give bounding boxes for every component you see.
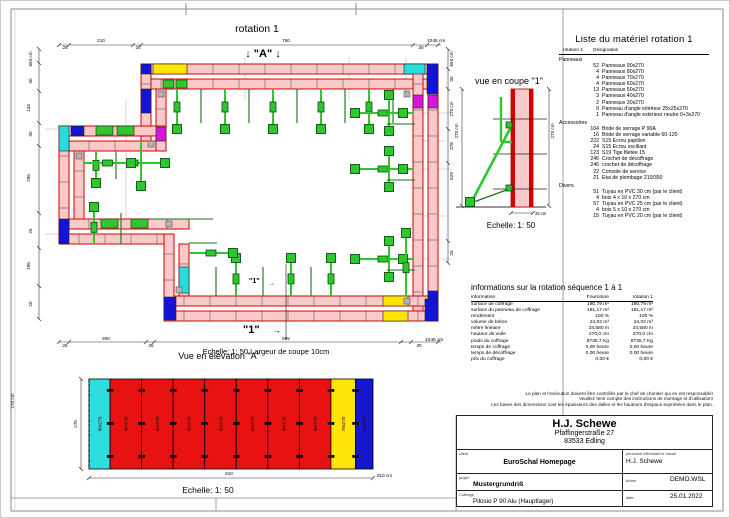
brace-sleeve (174, 102, 180, 112)
formwork-cell: Coffrage Pilosio P 90 Alu (Hauptlager) (457, 491, 623, 507)
brace-pad (385, 127, 394, 136)
dim-total: 694 cm (28, 51, 33, 66)
panel-segment (153, 64, 187, 74)
material-list-header-col2: Désignation (593, 48, 618, 53)
label: 25 (62, 343, 68, 348)
section-title: vue en coupe "1" (475, 76, 543, 86)
info-table-header: information Fourniture rotation 1 (471, 295, 653, 302)
brace-sleeve (233, 274, 239, 284)
tie-marker (205, 389, 208, 392)
tie-marker (300, 455, 303, 458)
panel-segment (425, 299, 438, 321)
panel-segment (176, 80, 187, 88)
info-col-information: information (471, 295, 555, 300)
panel-size-label: 90x270 (187, 416, 192, 431)
tie-marker (352, 422, 355, 425)
info-cell: 0,00 € (555, 357, 609, 363)
material-list-body: Panneaux52Panneaux 90x2704Panneaux 80x27… (559, 57, 709, 219)
info-row: prix du coffrage0,00 €0,00 € (471, 357, 653, 363)
label: 270 cm (550, 123, 555, 138)
panel-segment (428, 95, 438, 108)
elevation-title: Vue en élévation "A" (178, 351, 260, 361)
info-table-title: informations sur la rotation séquence 1 … (471, 283, 653, 292)
tie-marker (170, 389, 173, 392)
company-name: H.J. Schewe (457, 418, 712, 430)
brace-pad (327, 254, 336, 263)
label: 295 (26, 174, 31, 182)
worker-cell: personne effectuant le travail H.J. Sche… (623, 450, 712, 473)
cut-marker-1: "1" (243, 324, 260, 336)
info-cell: prix du coffrage (471, 357, 555, 363)
file-value: DEMO.WSL (670, 476, 705, 483)
material-item-label: Panneau d'angle extérieur neutre 0+3x270 (602, 112, 709, 118)
file-label: fichier (626, 478, 654, 483)
corner-piece (404, 91, 410, 97)
material-list: Liste du matériel rotation 1 rotation 1 … (559, 34, 709, 219)
corner-piece (148, 141, 154, 147)
tie-marker (328, 422, 331, 425)
brace-pad (399, 109, 408, 118)
tie-marker (174, 455, 177, 458)
material-list-title: Liste du matériel rotation 1 (559, 34, 709, 45)
worker-label: personne effectuant le travail (626, 451, 709, 456)
company-address1: Pfaffingerstraße 27 (457, 430, 712, 438)
wall-band (74, 151, 84, 219)
corner-piece (158, 91, 164, 97)
brace-pad (269, 125, 278, 134)
tie-marker (332, 455, 335, 458)
tie-marker (332, 422, 335, 425)
brace-sleeve (93, 160, 99, 170)
wall-band (156, 89, 166, 151)
label: 25 (148, 343, 154, 348)
brace-sleeve (403, 263, 409, 273)
brace-pad (385, 91, 394, 100)
tie-marker (237, 389, 240, 392)
brace-pad (351, 109, 360, 118)
tie-marker (170, 455, 173, 458)
disclaimer: Le plan et l'exécution doivent être cont… (421, 391, 713, 407)
panel-size-label: 90x270 (124, 416, 129, 431)
tie-marker (300, 422, 303, 425)
title-block-row-formwork: Coffrage Pilosio P 90 Alu (Hauptlager) d… (457, 491, 712, 507)
label: 30 (418, 45, 424, 50)
brace-pad (173, 125, 182, 134)
brace-pad (365, 125, 374, 134)
tie-marker (202, 389, 205, 392)
panel-segment (404, 64, 425, 74)
date-cell: date 25.01.2022 (623, 491, 712, 507)
material-item: 21Etai de plombage 210/350 (559, 175, 709, 181)
panel-size-label: 90x270 (155, 416, 160, 431)
wall-band (69, 141, 156, 151)
dim-total: 810 cm (377, 473, 392, 478)
panel-segment (59, 219, 69, 244)
brace-pad (385, 147, 394, 156)
brace-sleeve (318, 102, 324, 112)
tie-marker (356, 422, 359, 425)
brace-sleeve (378, 256, 388, 262)
tie-marker (111, 455, 114, 458)
label: 270 (73, 420, 78, 428)
tie-marker (174, 389, 177, 392)
tie-marker (205, 455, 208, 458)
info-cell: 0,00 € (609, 357, 653, 363)
tie-marker (328, 455, 331, 458)
label: 810 (225, 471, 233, 476)
corner-piece (176, 287, 182, 293)
elevation-marker-a: ↓ "A" ↓ (245, 48, 281, 60)
panel-segment (131, 219, 148, 228)
corner-piece (166, 221, 172, 227)
panel-size-label: 70x270 (341, 416, 346, 431)
date-label: date (626, 495, 654, 500)
label: 134 (26, 104, 31, 112)
brace-sleeve (328, 274, 334, 284)
panel-segment (101, 219, 118, 228)
panel-segment (427, 64, 438, 94)
project-label: projet (459, 475, 620, 480)
brace-sleeve (222, 102, 228, 112)
tie-marker (233, 455, 236, 458)
brace-pad (399, 165, 408, 174)
info-col-fourniture: Fourniture (555, 295, 609, 300)
panel-size-label: 90x270 (313, 416, 318, 431)
label: 30 (449, 76, 454, 82)
cut-arrow-icon: → (269, 281, 275, 287)
tie-marker (352, 389, 355, 392)
brace-pad (385, 183, 394, 192)
brace-sleeve (206, 250, 216, 256)
brace-pad (161, 159, 170, 168)
cut-arrow-icon: → (273, 326, 281, 335)
tie-marker (202, 422, 205, 425)
brace-pad (385, 273, 394, 282)
material-list-header: rotation 1 Désignation (559, 48, 709, 55)
material-item-label: Tuyau en PVC 20 cm (par le client) (602, 213, 709, 219)
tie-marker (107, 455, 110, 458)
panel-segment (117, 126, 134, 135)
brace-pad (92, 179, 101, 188)
panel-segment (71, 126, 84, 136)
brace-sleeve (378, 166, 388, 172)
title-block: H.J. Schewe Pfaffingerstraße 27 83533 Ed… (456, 415, 713, 507)
brace-pad (402, 229, 411, 238)
brace-sleeve (103, 160, 113, 166)
tie-marker (111, 422, 114, 425)
dim-total: 1045 cm (427, 38, 445, 44)
tie-marker (107, 422, 110, 425)
tie-marker (352, 455, 355, 458)
material-item: 1Panneau d'angle extérieur neutre 0+3x27… (559, 112, 709, 118)
brace-sleeve (288, 274, 294, 284)
plan-title: rotation 1 (235, 23, 279, 35)
tie-marker (237, 422, 240, 425)
dim-label: 25 cm (535, 211, 547, 216)
client-cell: client EuroSchal Homepage (457, 450, 623, 473)
panel-segment (164, 297, 176, 320)
label: 270 cm (449, 101, 454, 116)
label: 270 cm (454, 123, 459, 138)
brace-pad (90, 203, 99, 212)
corner-piece (404, 298, 410, 304)
tie-marker (138, 455, 141, 458)
tie-marker (142, 422, 145, 425)
label: 376 (449, 142, 454, 150)
brace-sleeve (91, 222, 97, 232)
panel-segment (413, 95, 423, 108)
label: 25 (449, 250, 454, 256)
tie-marker (265, 389, 268, 392)
brace-pad (385, 237, 394, 246)
tie-marker (265, 455, 268, 458)
panel-segment (383, 311, 408, 321)
label: 760 (282, 38, 290, 43)
tie-marker (296, 422, 299, 425)
tie-marker (138, 422, 141, 425)
panel-segment (96, 126, 113, 135)
label: 195 (26, 262, 31, 270)
dim-label: 25 (62, 45, 68, 50)
material-list-header-col1: rotation 1 (563, 48, 583, 53)
panel-segment (141, 89, 151, 113)
tie-marker (268, 422, 271, 425)
label: 300 (102, 336, 110, 341)
brace-pad (127, 159, 136, 168)
brace-pad (229, 249, 238, 258)
panel-size-label: 60x270 (97, 416, 102, 431)
cut-marker-1-small: "1" (249, 278, 260, 285)
title-block-row-project: projet Mustergrundriß fichier DEMO.WSL (457, 474, 712, 491)
tie-marker (237, 455, 240, 458)
corner-piece (76, 153, 82, 159)
client-value: EuroSchal Homepage (459, 459, 620, 466)
section-scale: Echelle: 1: 50 (487, 221, 536, 230)
brace-sleeve (270, 102, 276, 112)
dim-total: 694 cm (449, 51, 454, 66)
tie-marker (300, 389, 303, 392)
tie-marker (111, 389, 114, 392)
file-cell: fichier DEMO.WSL (623, 474, 712, 490)
material-item-qty: 1 (559, 112, 602, 118)
date-value: 25.01.2022 (670, 493, 703, 500)
client-label: client (459, 451, 620, 456)
tie-marker (268, 389, 271, 392)
title-block-row-client: client EuroSchal Homepage personne effec… (457, 450, 712, 474)
tie-marker (265, 422, 268, 425)
tie-marker (142, 455, 145, 458)
label: 210 (97, 38, 105, 43)
formwork-value: Pilosio P 90 Alu (Hauptlager) (473, 498, 620, 505)
label: 30 (28, 78, 33, 84)
label: 20 (135, 45, 141, 50)
panel-size-label: 50x270 (362, 416, 367, 431)
tie-marker (356, 389, 359, 392)
tie-marker (174, 422, 177, 425)
formwork-label: Coffrage (459, 492, 620, 497)
info-table: informations sur la rotation séquence 1 … (471, 283, 653, 363)
brace-pad (466, 198, 475, 207)
project-value: Mustergrundriß (473, 481, 620, 488)
tie-marker (138, 389, 141, 392)
title-block-company: H.J. Schewe Pfaffingerstraße 27 83533 Ed… (457, 416, 712, 450)
tie-marker (296, 389, 299, 392)
tie-marker (202, 455, 205, 458)
label: 270 cm (10, 393, 15, 408)
tie-marker (332, 389, 335, 392)
brace-pad (351, 165, 360, 174)
tie-marker (107, 389, 110, 392)
label: 30 (416, 343, 422, 348)
brace-pad (221, 125, 230, 134)
panel-segment (163, 80, 174, 88)
brace-pad (351, 255, 360, 264)
tie-marker (296, 455, 299, 458)
label: 25 (28, 228, 33, 234)
drawing-sheet: "1"→"1"→rotation 1↓ "A" ↓Echelle: 1: 50 … (0, 0, 730, 518)
tie-marker (170, 422, 173, 425)
brace-pad (317, 125, 326, 134)
material-item: 15Tuyau en PVC 20 cm (par le client) (559, 213, 709, 219)
material-item-qty: 15 (559, 213, 602, 219)
tie-marker (328, 389, 331, 392)
label: 30 (28, 131, 33, 137)
panel-size-label: 90x270 (250, 416, 255, 431)
panel-segment (156, 127, 166, 141)
material-item-qty: 21 (559, 175, 602, 181)
brace-pad (506, 122, 512, 128)
dim-total: 1045 cm (425, 337, 443, 343)
panel-size-label: 90x270 (218, 416, 223, 431)
info-col-rotation: rotation 1 (609, 295, 653, 300)
panel-segment (59, 126, 69, 151)
worker-value: H.J. Schewe (626, 458, 709, 465)
disclaimer-line: Les bases des dimensions sont les épaiss… (421, 402, 713, 407)
brace-pad (137, 182, 146, 191)
brace-sleeve (378, 110, 388, 116)
elevation-scale: Echelle: 1: 50 (182, 485, 234, 495)
brace-pad (506, 185, 512, 191)
panel-segment (141, 64, 151, 74)
tie-marker (233, 389, 236, 392)
label: 665 (282, 336, 290, 341)
brace-sleeve (366, 102, 372, 112)
project-cell: projet Mustergrundriß (457, 474, 623, 490)
company-address2: 83533 Edling (457, 438, 712, 446)
brace-pad (287, 254, 296, 263)
tie-marker (268, 455, 271, 458)
tie-marker (233, 422, 236, 425)
tie-marker (356, 455, 359, 458)
tie-marker (142, 389, 145, 392)
info-table-body: surface de coffrage180,79 m²180,79 m²sur… (471, 302, 653, 363)
label: 25 (28, 301, 33, 307)
label: 629 (449, 172, 454, 180)
panel-size-label: 90x270 (281, 416, 286, 431)
tie-marker (205, 422, 208, 425)
material-item-label: Etai de plombage 210/350 (602, 175, 709, 181)
